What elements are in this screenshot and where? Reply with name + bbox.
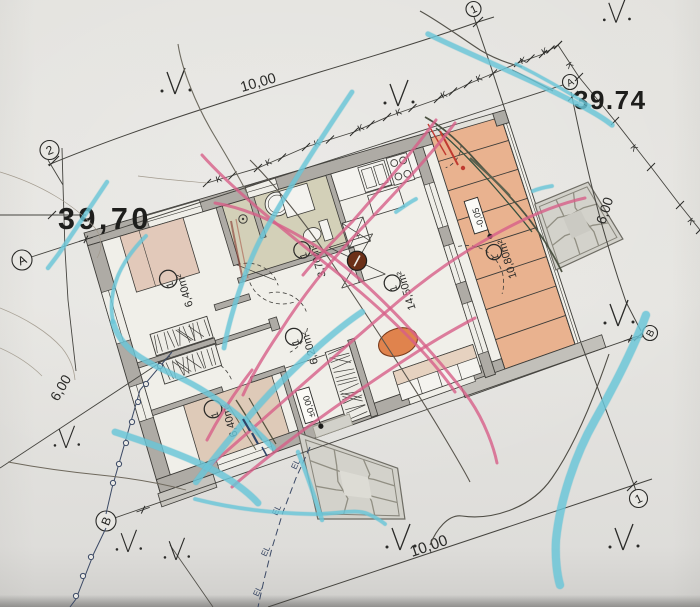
svg-text:K: K [628, 143, 640, 154]
svg-text:10,00: 10,00 [239, 70, 278, 95]
svg-text:K: K [685, 216, 697, 227]
svg-text:6,00: 6,00 [47, 372, 75, 404]
svg-text:K: K [394, 106, 403, 117]
